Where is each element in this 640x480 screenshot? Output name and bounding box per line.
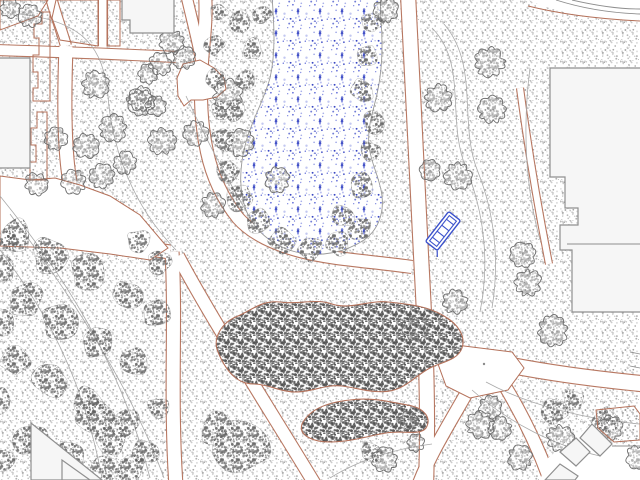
tree-symbol xyxy=(213,78,243,109)
drawing-canvas[interactable] xyxy=(0,0,640,480)
path-left-corridor xyxy=(65,46,70,182)
tree-canopy xyxy=(144,300,171,325)
tree-canopy xyxy=(72,253,105,290)
app-window xyxy=(0,0,640,480)
junction-point xyxy=(483,363,485,365)
building-top-center xyxy=(122,0,174,33)
tree-symbol xyxy=(81,70,109,98)
path-band xyxy=(0,50,176,57)
tree-canopy xyxy=(42,304,78,339)
path-west-vert xyxy=(172,252,176,480)
building-top-left xyxy=(0,58,30,168)
tree-canopy xyxy=(83,327,112,357)
